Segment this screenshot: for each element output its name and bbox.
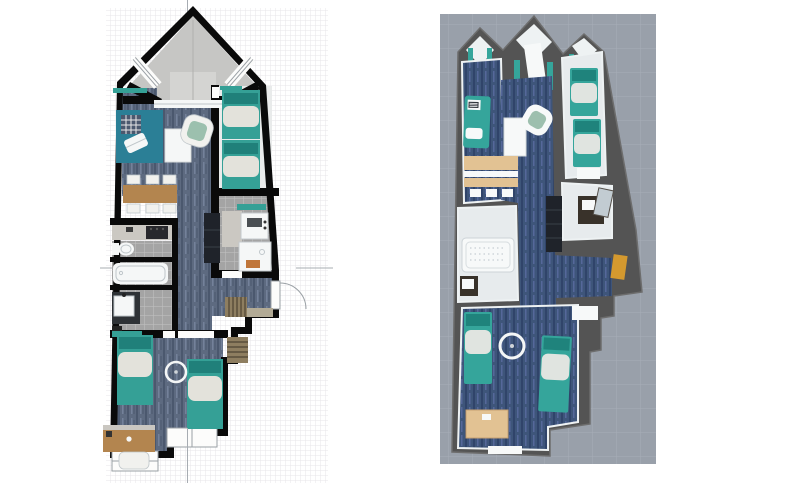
floorplanner-workspace (0, 0, 800, 483)
tall-cabinet[interactable] (204, 213, 220, 263)
bedroom-threshold-a[interactable] (163, 331, 175, 338)
bathtub[interactable] (113, 263, 168, 284)
plan-2d-canvas[interactable] (0, 0, 400, 483)
toilet[interactable] (112, 243, 134, 256)
bathtub-3d[interactable] (462, 238, 514, 272)
bed-bottom-left[interactable] (117, 335, 153, 405)
kitchen-opening[interactable] (222, 271, 242, 278)
bottom-window-3d[interactable] (488, 446, 522, 454)
slatted-shelf-a[interactable] (225, 297, 247, 317)
bed-bottom-right[interactable] (187, 359, 223, 429)
doormat[interactable] (247, 308, 273, 317)
view-3d-canvas[interactable] (400, 0, 800, 483)
curtain-pelmet-left[interactable] (113, 88, 147, 93)
curtain-pelmet-right[interactable] (220, 86, 242, 90)
bedroom-door-top[interactable] (212, 87, 219, 98)
bedside-bench-3d[interactable] (577, 168, 600, 179)
chaise-lounge-3d[interactable] (463, 96, 491, 149)
bedroom-door-3d[interactable] (572, 306, 598, 320)
kitchen-counter[interactable] (112, 225, 172, 240)
bed-right-2-3d[interactable] (573, 119, 601, 167)
wardrobe-3d[interactable] (546, 196, 562, 252)
bedroom-threshold-b[interactable] (178, 331, 214, 338)
desk-3d[interactable] (466, 410, 508, 438)
bed-right-1-3d[interactable] (570, 68, 598, 116)
bed-bottom-right-3d[interactable] (538, 335, 572, 412)
view-3d-panel[interactable] (400, 0, 800, 483)
desk[interactable] (103, 425, 155, 452)
sideboard-dining-3d[interactable] (464, 156, 518, 197)
slatted-shelf-b[interactable] (227, 337, 248, 363)
bed-right-1[interactable] (222, 90, 260, 139)
entrance-floor-3d[interactable] (552, 255, 612, 298)
bottom-window-right[interactable] (167, 428, 217, 447)
bed-bottom-left-3d[interactable] (464, 312, 492, 384)
washbasin-3d[interactable] (460, 276, 478, 296)
bed-right-2[interactable] (222, 140, 260, 189)
desk-chair[interactable] (119, 452, 149, 469)
dining-set[interactable] (123, 175, 177, 213)
plan-2d-panel[interactable] (0, 0, 400, 483)
